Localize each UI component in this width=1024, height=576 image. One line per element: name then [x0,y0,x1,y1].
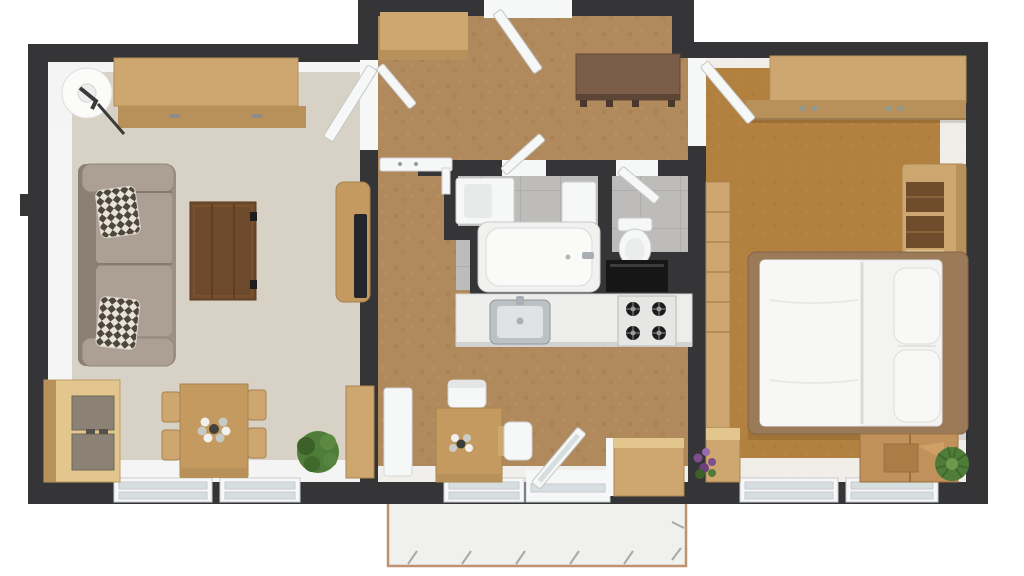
closet-shelf-front [380,50,468,60]
wall-hall-top-right [566,0,680,16]
bench-leg [668,100,675,107]
burner-cap [657,307,662,312]
hook [414,162,418,166]
closet-strip [706,182,730,434]
bathtub-basin [486,228,592,286]
living-window-1 [114,478,212,502]
bench-leg [606,100,613,107]
flower [694,454,703,463]
window-glass [745,492,833,499]
bathtub-faucet [582,252,594,259]
tall-cabinet [346,386,374,478]
plant-center [946,458,958,470]
living-plant [297,431,339,473]
vanity-sink-basin [464,184,492,218]
window-glass [851,492,933,499]
bed-pillow [894,350,940,422]
throw-pillow [95,296,140,350]
bathtub-drain [566,255,571,260]
coffee-table-hinge [250,280,257,289]
flower [465,444,473,452]
sofa [78,164,176,366]
wall-bath-top-3 [658,160,692,176]
plant-foliage [297,437,315,455]
media-cabinet-panel [72,396,114,430]
wardrobe-shadow [746,118,966,123]
flower [708,458,716,466]
bench-leg [632,100,639,107]
flower [198,427,207,436]
toilet-room [618,218,652,267]
coffee-table-top [190,202,256,300]
coffee-table-hinge [250,212,257,221]
living-window-2 [220,478,300,502]
media-cabinet [44,380,120,482]
burner-cap [631,307,636,312]
floor-plan [0,0,1024,576]
tall-white-cabinet [384,388,412,476]
stove-top [618,296,676,346]
window-glass [851,482,933,489]
plant-foliage [304,456,320,472]
wall-left-notch [20,194,28,216]
breakfast-table-edge [436,474,502,482]
flower [451,434,459,442]
refrigerator-highlight [610,264,664,267]
base-cabinet [606,438,684,496]
credenza-handle [170,114,180,118]
flower-leaves [708,469,716,477]
hall-bench [576,54,680,107]
dining-chair [162,430,180,460]
flower [201,418,210,427]
bench-top [576,54,680,100]
vase [209,424,219,434]
sofa-backrest [78,164,98,366]
flower [219,418,228,427]
flower [222,427,231,436]
plant-foliage [323,453,337,467]
dining-chair [248,390,266,420]
wardrobe-knob [812,106,817,111]
wardrobe [746,56,966,123]
bench-leg [580,100,587,107]
vase [457,440,466,449]
tv-screen [354,214,367,298]
window-glass [225,482,295,489]
kitchen-sink [490,296,550,344]
wardrobe-knob [886,106,891,111]
toilet-seat [625,238,645,262]
media-cabinet-handle [86,429,95,434]
credenza-top [114,58,298,106]
sink-faucet [516,296,524,305]
burner-cap [657,331,662,336]
hook [398,162,402,166]
wall-bath-top-2 [546,160,616,176]
wardrobe-front [746,100,966,120]
window-glass [119,492,207,499]
dining-chair [248,428,266,458]
burner-cap [631,331,636,336]
bedroom-plant [935,447,969,481]
wall-shelf-leg [442,168,450,194]
bedroom-window-1 [740,478,838,502]
window-glass [745,482,833,489]
window-glass [119,482,207,489]
cabinet-top-face [614,438,684,448]
coffee-table [190,202,257,300]
window-glass [225,492,295,499]
tv-stand [336,182,370,302]
kitchen-chair [504,422,532,460]
media-cabinet-panel [72,434,114,470]
flower [204,434,213,443]
gas-stove [618,296,676,346]
sink-drain [517,318,524,325]
credenza-front [118,106,306,128]
wardrobe-knob [898,106,903,111]
wardrobe-top [770,56,966,102]
flower-leaves [695,469,705,479]
duvet [760,260,862,426]
credenza-handle [252,114,262,118]
bath-cabinet [562,182,596,226]
shelf-dresser [902,164,966,262]
box-opening [884,444,918,472]
wardrobe-knob [800,106,805,111]
flower [216,434,225,443]
dining-table-edge [180,468,248,478]
balcony-floor [388,502,686,566]
media-cabinet-handle [99,429,108,434]
chair-back [448,380,486,388]
balcony [388,502,686,566]
flower [702,448,710,456]
media-cabinet-side [44,380,56,482]
throw-pillow [95,185,141,238]
window-glass [449,492,519,499]
plant-foliage [320,434,336,450]
dresser-side [956,164,966,262]
wall-right [966,42,988,504]
closet-foot-top [706,428,740,440]
dining-chair [162,392,180,422]
flower [463,434,471,442]
window-glass [449,482,519,489]
bed-pillow [894,268,940,344]
bathtub [478,222,600,292]
flower [449,444,457,452]
double-bed [748,252,968,440]
bench-edge [576,94,680,100]
